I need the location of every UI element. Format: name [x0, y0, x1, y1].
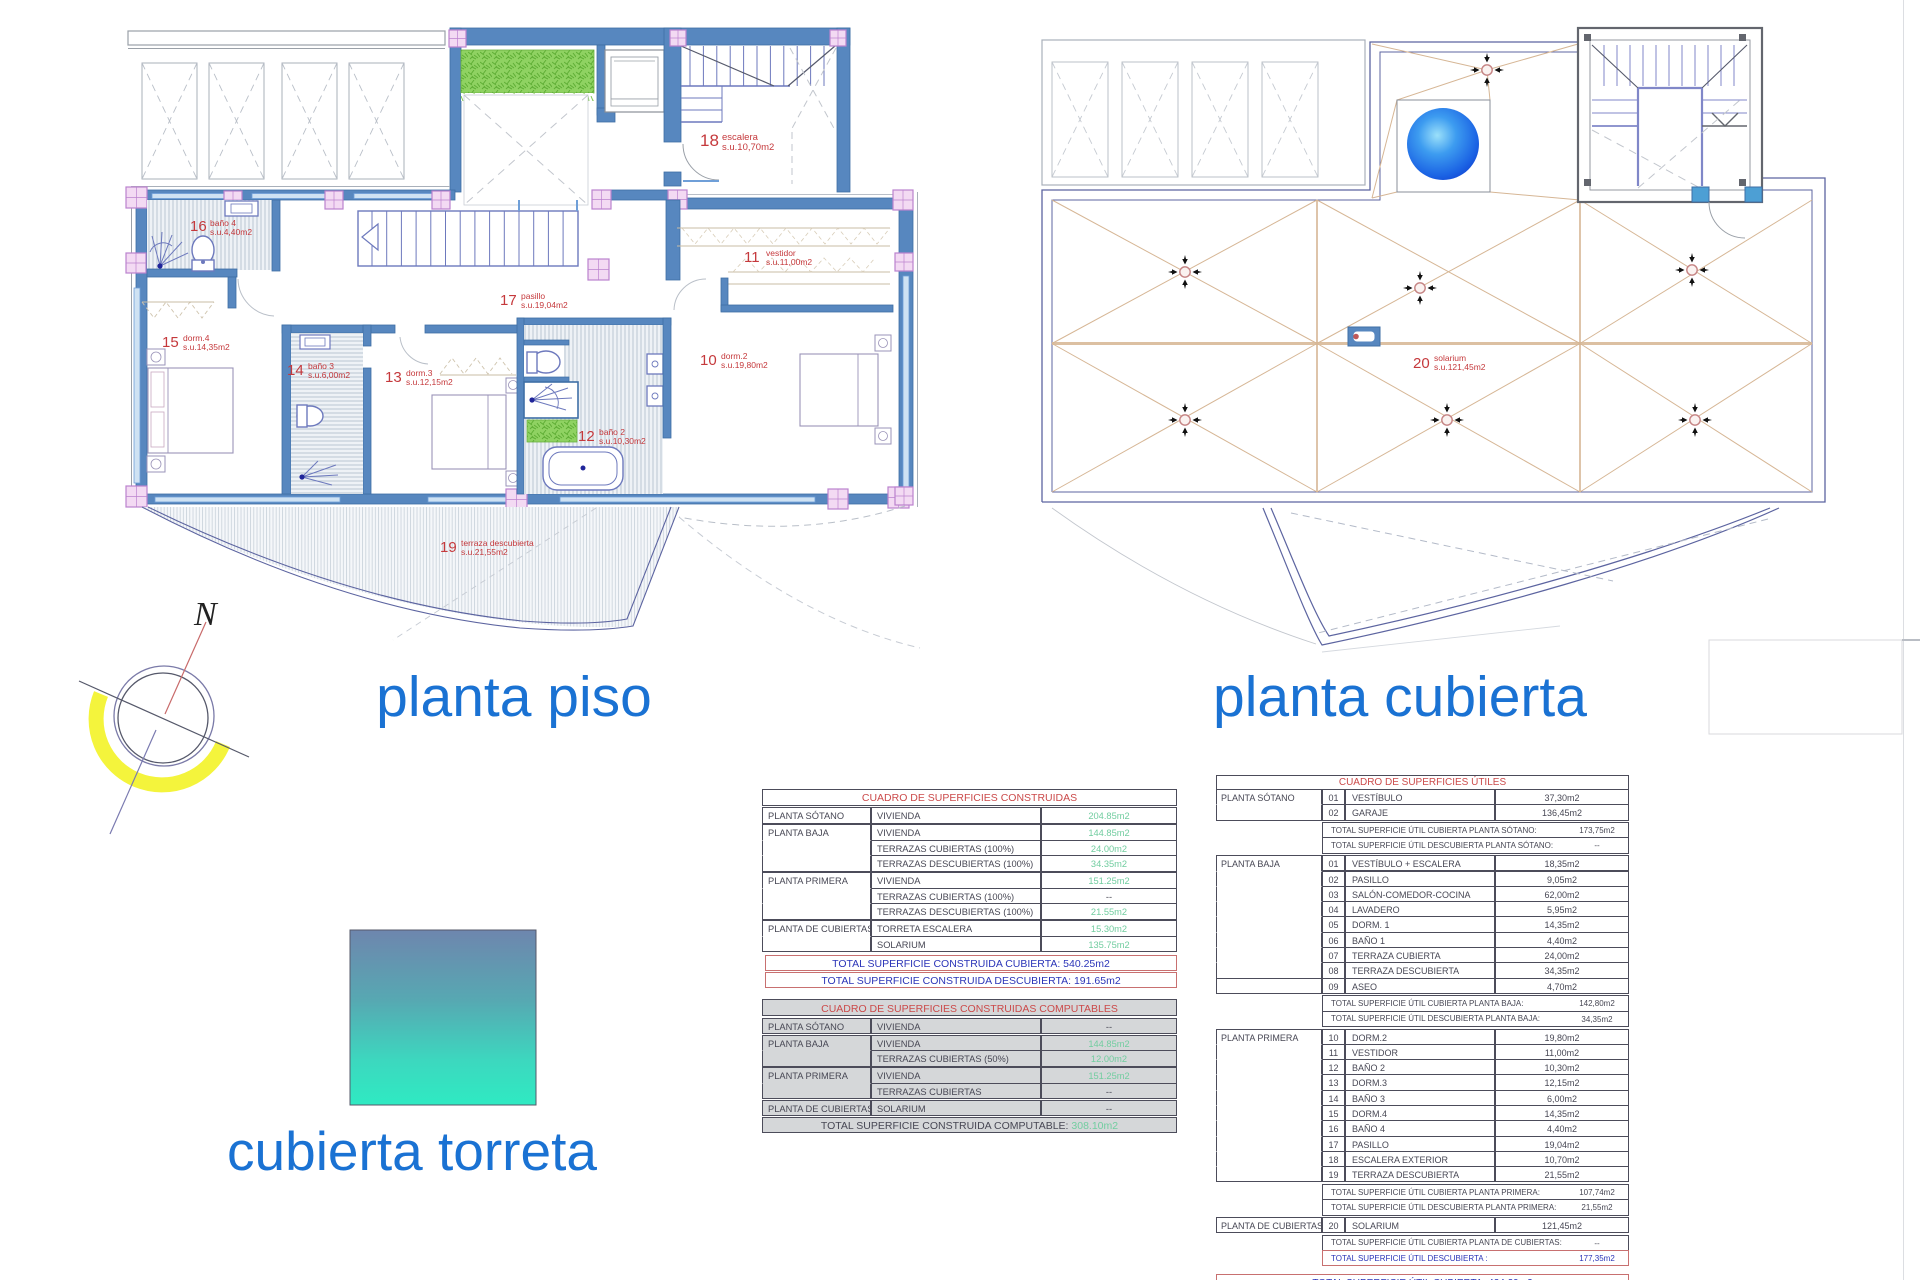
- svg-text:s.u.19,80m2: s.u.19,80m2: [721, 360, 768, 370]
- svg-text:10: 10: [700, 352, 717, 369]
- svg-text:17: 17: [500, 292, 517, 309]
- svg-text:cubierta torreta: cubierta torreta: [227, 1120, 597, 1182]
- svg-text:planta cubierta: planta cubierta: [1213, 665, 1587, 729]
- svg-text:16: 16: [190, 218, 207, 235]
- svg-text:s.u.21,55m2: s.u.21,55m2: [461, 547, 508, 557]
- svg-text:s.u.11,00m2: s.u.11,00m2: [766, 257, 812, 267]
- svg-text:11: 11: [744, 249, 760, 266]
- svg-text:planta piso: planta piso: [376, 665, 652, 729]
- svg-text:20: 20: [1413, 355, 1430, 372]
- svg-text:13: 13: [385, 369, 402, 386]
- svg-text:15: 15: [162, 334, 179, 351]
- svg-text:s.u.4,40m2: s.u.4,40m2: [210, 227, 252, 237]
- svg-text:12: 12: [578, 428, 595, 445]
- svg-text:N: N: [193, 596, 219, 633]
- svg-text:s.u.12,15m2: s.u.12,15m2: [406, 377, 453, 387]
- svg-text:s.u.19,04m2: s.u.19,04m2: [521, 300, 568, 310]
- svg-text:s.u.121,45m2: s.u.121,45m2: [1434, 362, 1486, 372]
- svg-text:s.u.6,00m2: s.u.6,00m2: [308, 370, 350, 380]
- svg-text:18: 18: [700, 131, 719, 150]
- svg-text:19: 19: [440, 539, 457, 556]
- svg-text:s.u.14,35m2: s.u.14,35m2: [183, 342, 230, 352]
- svg-text:s.u.10,30m2: s.u.10,30m2: [599, 436, 646, 446]
- svg-text:14: 14: [287, 362, 304, 379]
- svg-text:s.u.10,70m2: s.u.10,70m2: [722, 142, 774, 153]
